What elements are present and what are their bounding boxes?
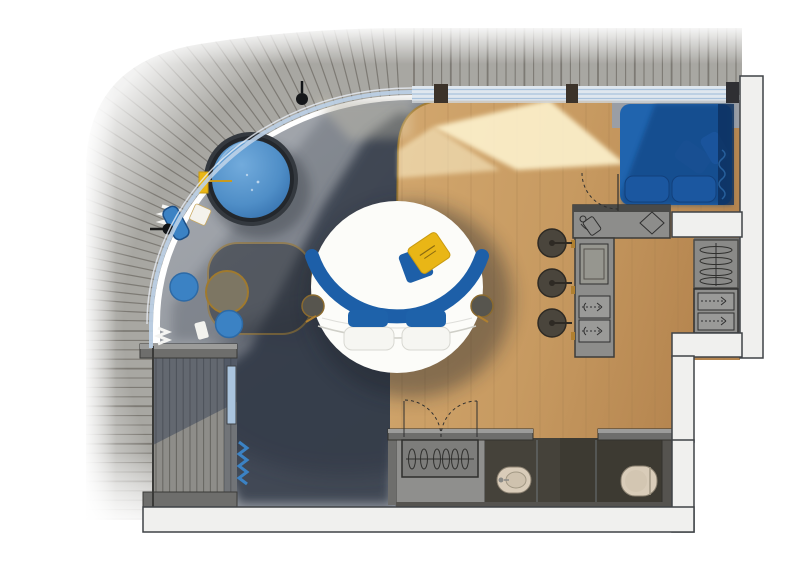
walkway-glass-door	[227, 366, 236, 424]
walkway-wall-bottom	[143, 492, 237, 507]
blue-pillow-right	[406, 310, 446, 327]
tub-bubble-1	[257, 181, 260, 184]
nightstand-right	[471, 295, 493, 317]
wall-right	[740, 76, 763, 358]
tub-bubble-2	[251, 189, 253, 191]
bidet-tap	[499, 478, 504, 483]
mullion-post-2	[566, 84, 578, 103]
hot-tub-water	[212, 140, 290, 218]
bathroom-floor-shade	[560, 438, 672, 505]
floor-lamp-north	[296, 93, 308, 105]
bidet	[497, 467, 531, 493]
bath-right-divider	[662, 440, 672, 505]
wall-bottom	[143, 507, 694, 532]
wall-niche-bottom	[672, 333, 742, 357]
toilet	[621, 466, 657, 496]
mullion-post-corner	[726, 82, 739, 103]
lounge-table	[206, 271, 248, 313]
pouf-2	[216, 311, 243, 338]
counter-knob-2	[571, 286, 575, 294]
white-pillow-left	[344, 327, 394, 350]
sofa-nook	[612, 100, 740, 205]
white-pillow-right	[402, 327, 450, 350]
toilet-bowl-shade	[625, 470, 647, 492]
tub-bubble-3	[246, 174, 248, 176]
vestibule-left-wall	[388, 437, 396, 505]
floorplan-stage: Hotel suite floor plan — top-down 3D ren…	[0, 0, 800, 562]
pouf-1	[170, 273, 198, 301]
bath-wall-left-seg-hl	[388, 429, 533, 433]
sofa-seat-cushion-1	[625, 176, 669, 202]
wall-right-lower	[672, 356, 694, 442]
entry-walkway	[140, 328, 247, 508]
closet-drawer-2	[698, 313, 734, 330]
wall-niche-top	[672, 212, 742, 237]
entry-wardrobe	[402, 440, 478, 477]
mullion-post-1	[434, 84, 448, 103]
closet-niche	[694, 238, 740, 336]
walkway-wall-top-hl	[140, 344, 237, 349]
counter-knob-3	[571, 332, 575, 340]
closet-drawer-1	[698, 293, 734, 310]
sofa-seat-cushion-2	[672, 176, 716, 202]
sofa-armrest-shadow	[718, 104, 734, 205]
counter-top-edge	[573, 205, 670, 212]
nightstand-left	[302, 295, 324, 317]
floorplan-svg: Hotel suite floor plan — top-down 3D ren…	[0, 0, 800, 562]
bath-wall-right-seg-hl	[598, 429, 673, 433]
closet-drawers	[694, 289, 738, 333]
blue-pillow-left	[348, 310, 388, 327]
